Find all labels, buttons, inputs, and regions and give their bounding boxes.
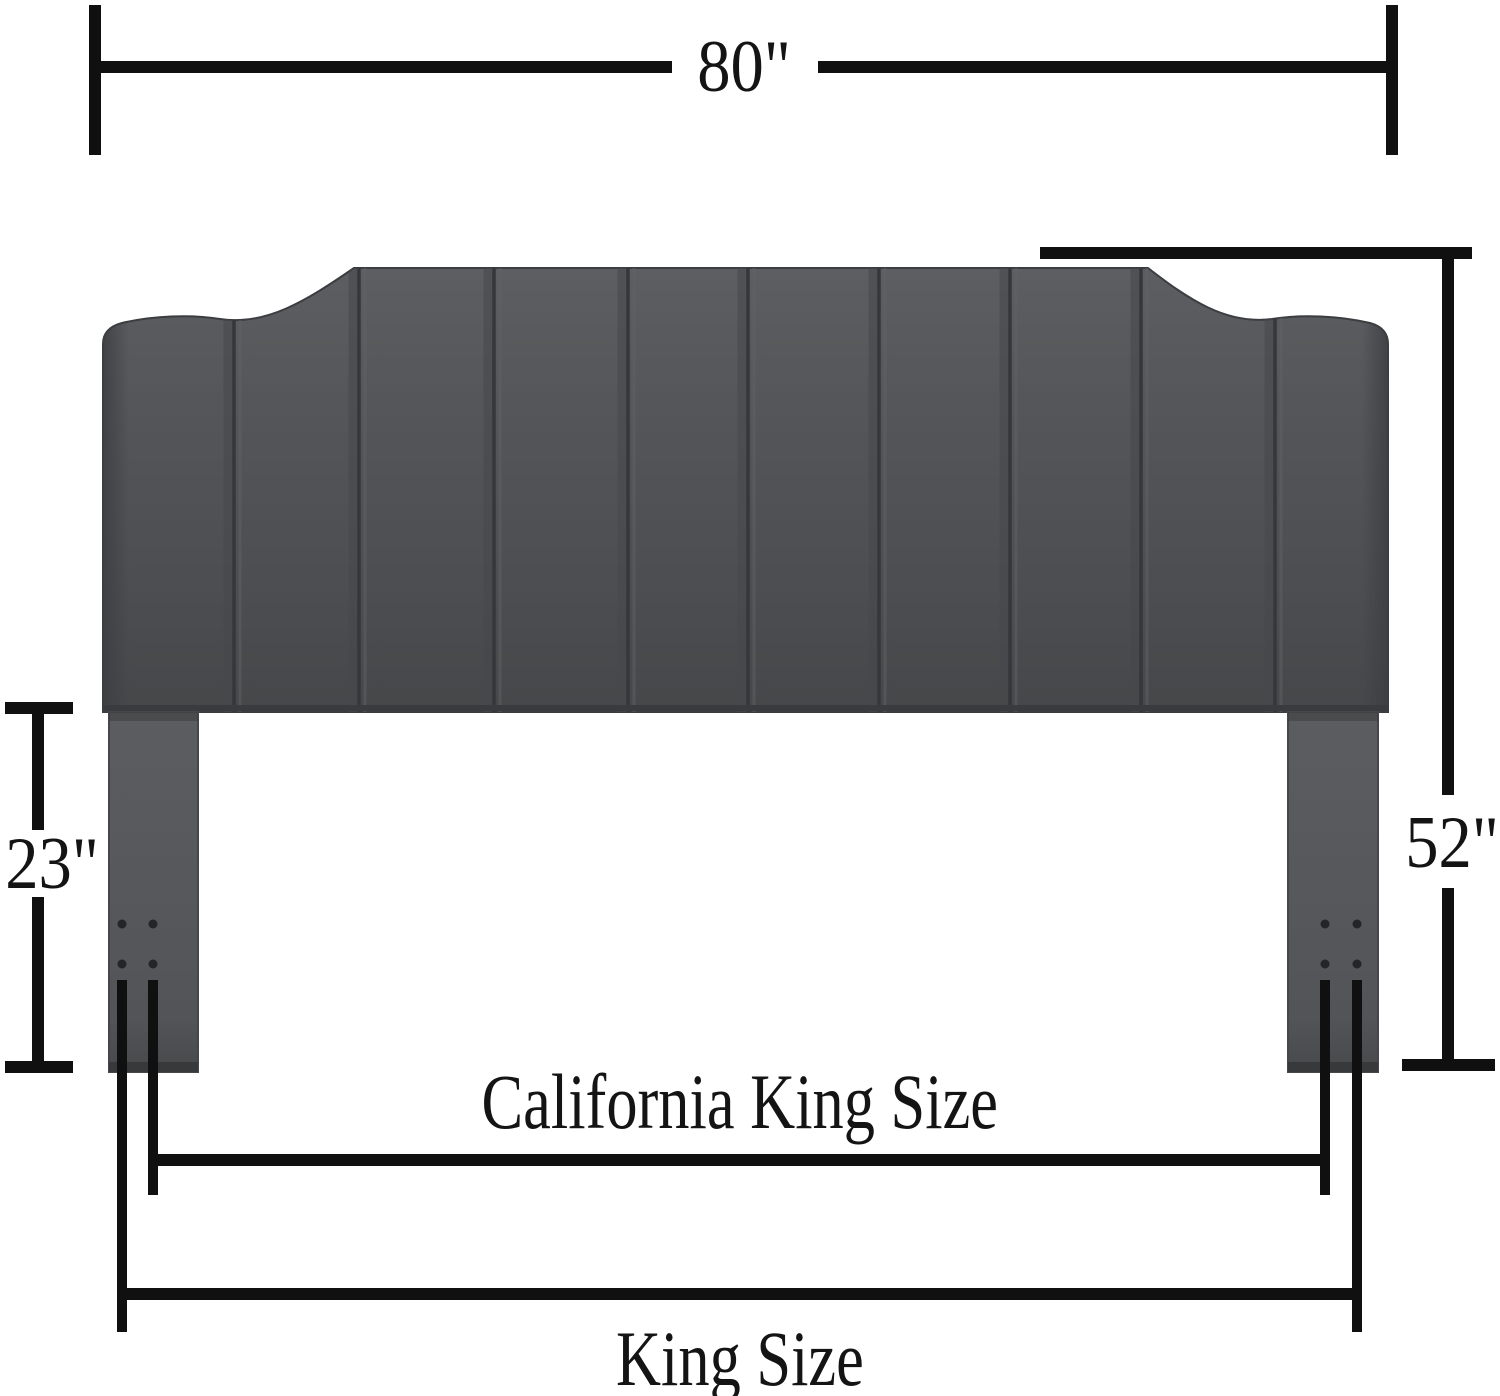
leg-dim-value: 23" <box>5 822 99 907</box>
height-dim-line-lower <box>1442 888 1454 1065</box>
height-dim-bottom-cap <box>1402 1059 1495 1071</box>
king-span-label: King Size <box>340 1314 1140 1396</box>
leg-dim-line-lower <box>32 897 44 1067</box>
king-ext-line-left <box>117 980 127 1332</box>
calking-span-line <box>153 1154 1327 1166</box>
headboard-illustration <box>0 0 1500 1396</box>
leg-dim-label: 23" <box>0 822 152 906</box>
width-dim-value: 80" <box>697 25 791 110</box>
height-dim-label: 52" <box>1352 801 1500 885</box>
leg-dim-line-upper <box>32 708 44 830</box>
calking-span-label: California King Size <box>340 1057 1140 1147</box>
width-dim-left-cap <box>89 5 101 155</box>
right-leg <box>1288 712 1378 1072</box>
height-dim-line-upper <box>1442 253 1454 795</box>
dimension-diagram: 80" 52" 23" California King Size King Si… <box>0 0 1500 1396</box>
king-ext-line-right <box>1352 980 1362 1332</box>
calking-span-text: California King Size <box>482 1057 998 1147</box>
height-dim-value: 52" <box>1405 801 1499 886</box>
king-span-line <box>122 1288 1358 1300</box>
width-dim-label: 80" <box>644 25 844 109</box>
leg-dim-bottom-cap <box>5 1061 73 1073</box>
width-dim-right-cap <box>1386 5 1398 155</box>
bolt-holes <box>118 920 1362 969</box>
king-span-text: King Size <box>616 1314 864 1396</box>
width-dim-line-left <box>95 61 672 73</box>
headboard-body <box>103 250 1388 712</box>
height-dim-top-cap <box>1040 247 1472 259</box>
width-dim-line-right <box>818 61 1392 73</box>
